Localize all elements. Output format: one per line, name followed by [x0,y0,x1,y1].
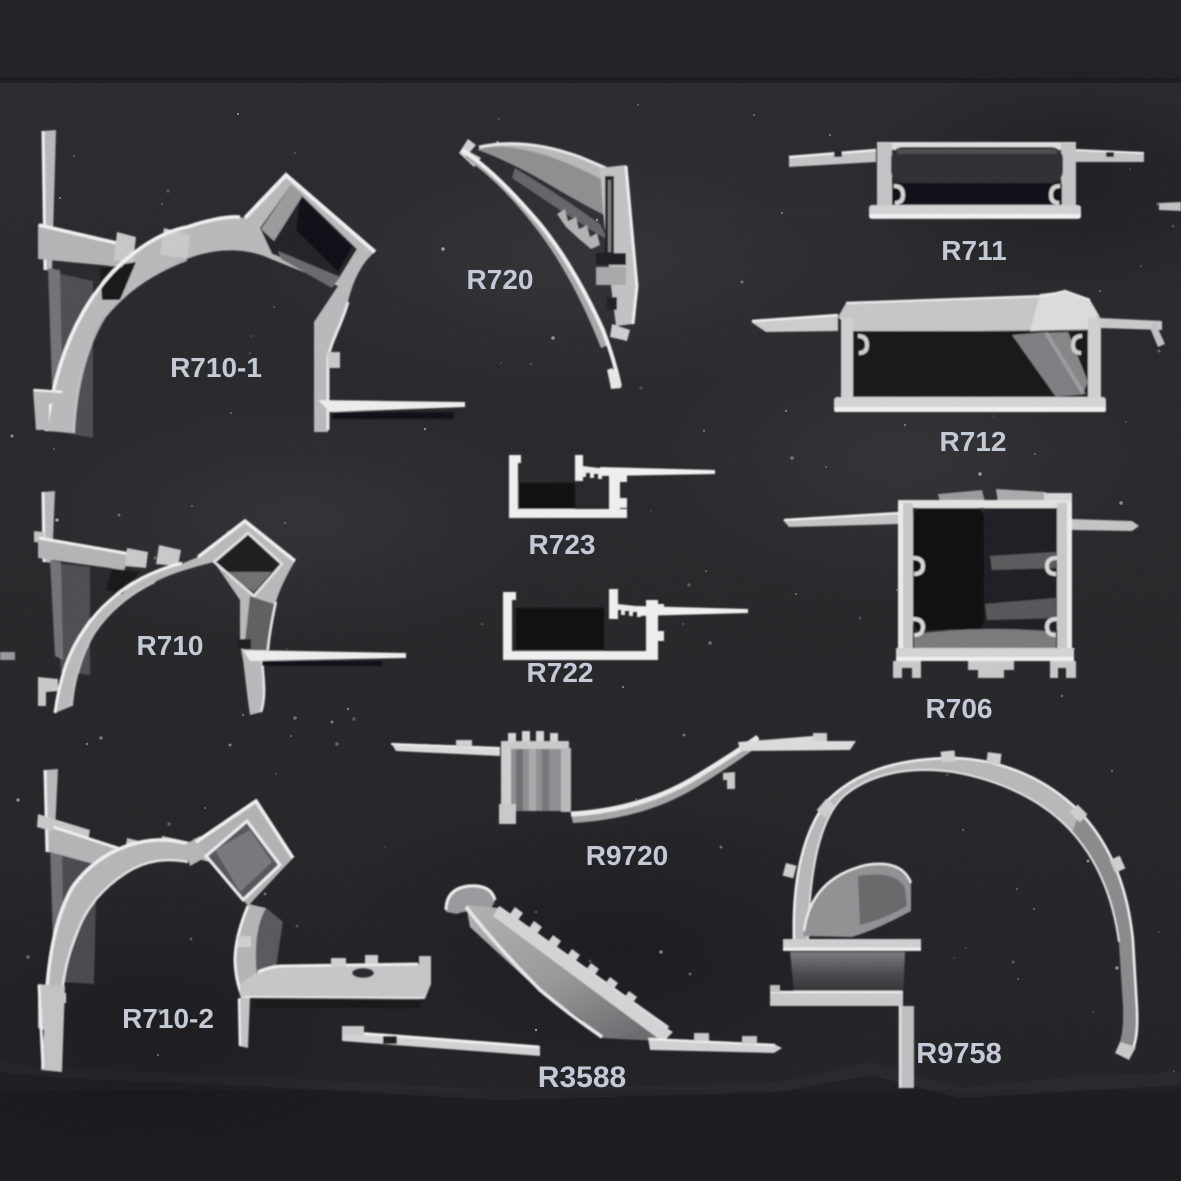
svg-text:R3588: R3588 [538,1061,626,1094]
svg-text:R712: R712 [940,426,1007,457]
svg-text:R710-2: R710-2 [122,1003,214,1034]
svg-text:R710-1: R710-1 [170,352,262,383]
svg-text:R720: R720 [467,264,534,295]
svg-text:R722: R722 [527,657,594,688]
svg-text:R711: R711 [941,235,1006,266]
svg-text:R9758: R9758 [916,1038,1001,1070]
svg-text:R723: R723 [529,529,596,560]
svg-text:R9720: R9720 [586,840,669,871]
svg-text:R710: R710 [137,630,204,661]
svg-text:R706: R706 [926,693,993,724]
